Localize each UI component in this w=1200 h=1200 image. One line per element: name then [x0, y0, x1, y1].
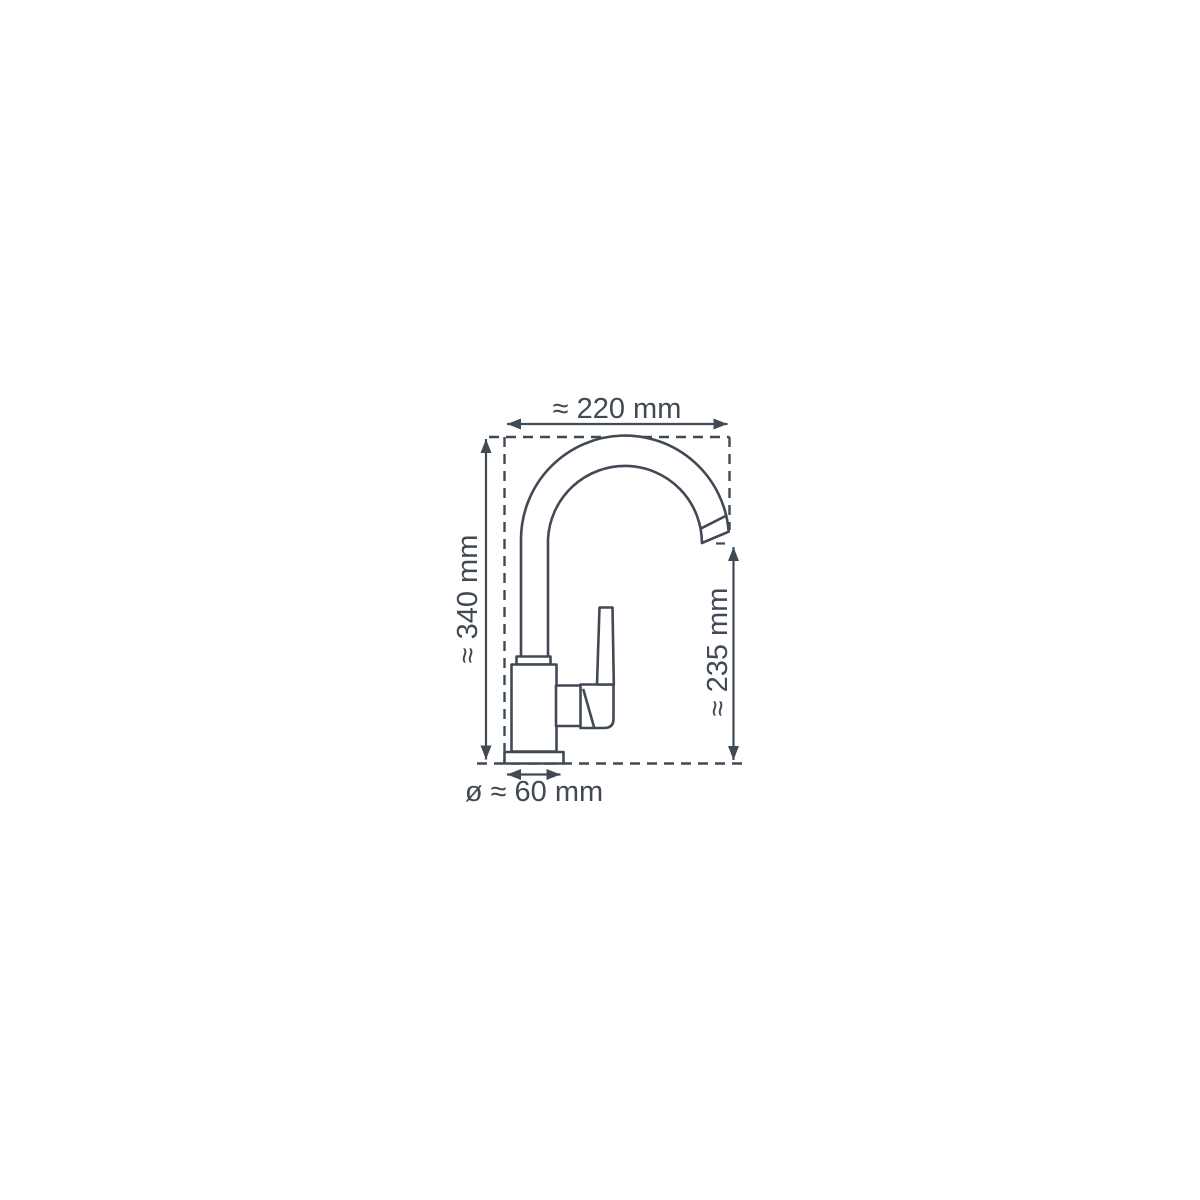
- faucet-body: [512, 665, 557, 752]
- faucet-valve-connector: [556, 686, 581, 727]
- faucet-outline: [505, 436, 729, 764]
- dimension-label-height-total: ≈ 340 mm: [452, 535, 484, 664]
- faucet-spout: [521, 436, 729, 658]
- faucet-lever-handle: [597, 608, 614, 685]
- dimension-label-width: ≈ 220 mm: [553, 393, 682, 425]
- faucet-handle-mount: [581, 685, 614, 729]
- dimension-label-height-spout: ≈ 235 mm: [702, 588, 734, 717]
- dimension-label-base-diameter: ø ≈ 60 mm: [465, 776, 603, 808]
- technical-drawing-canvas: ≈ 220 mm ≈ 340 mm ≈ 235 mm ø ≈ 60 mm: [0, 0, 1200, 1200]
- faucet-base-plate: [505, 752, 564, 764]
- faucet-dimension-diagram: ≈ 220 mm ≈ 340 mm ≈ 235 mm ø ≈ 60 mm: [0, 0, 1200, 1200]
